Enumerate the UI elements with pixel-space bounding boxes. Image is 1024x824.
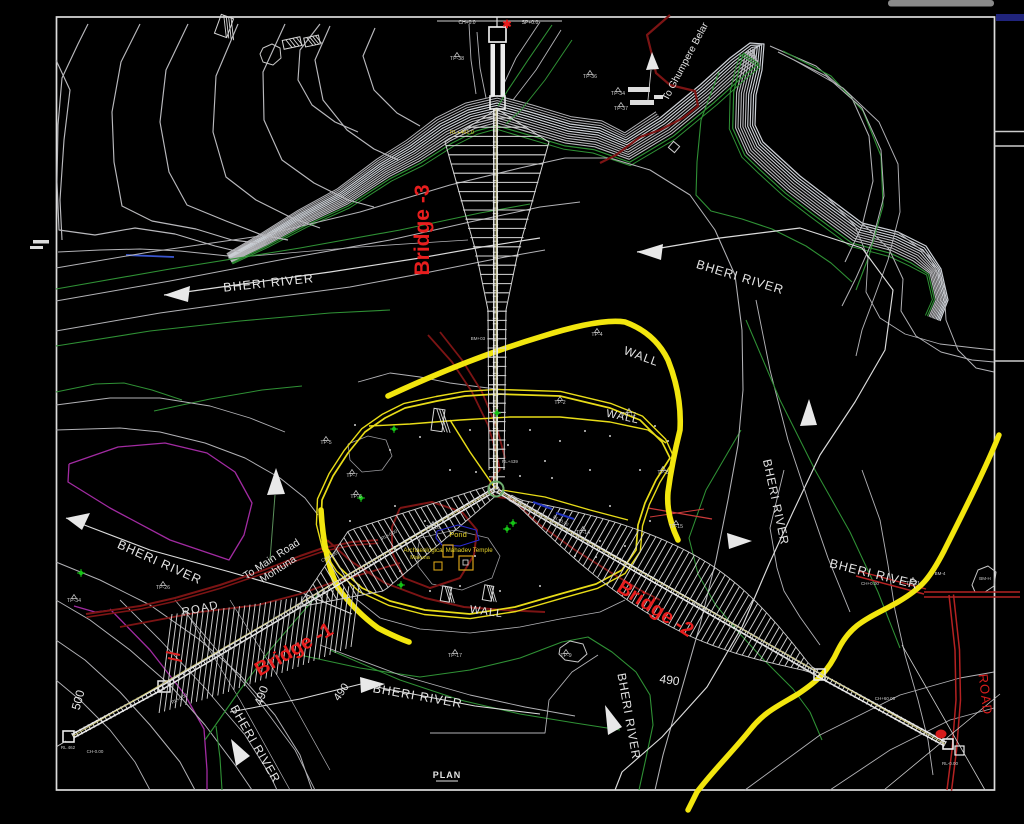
svg-text:RL 462: RL 462 xyxy=(61,745,76,750)
svg-text:TP-6: TP-6 xyxy=(350,494,361,500)
svg-text:490: 490 xyxy=(659,672,681,689)
svg-text:TP-34: TP-34 xyxy=(611,91,625,97)
svg-text:TP-4: TP-4 xyxy=(591,332,602,338)
svg-text:CH+0.00: CH+0.00 xyxy=(861,581,879,586)
svg-text:TP-17: TP-17 xyxy=(448,653,462,659)
svg-text:RL-0.00: RL-0.00 xyxy=(942,761,959,766)
svg-text:TP-9: TP-9 xyxy=(560,653,571,659)
svg-text:CH+60.00: CH+60.00 xyxy=(875,696,896,701)
svg-text:RL+439: RL+439 xyxy=(502,459,518,464)
svg-text:✱: ✱ xyxy=(502,19,511,31)
svg-text:TP-15: TP-15 xyxy=(669,524,683,530)
svg-text:TP-37: TP-37 xyxy=(614,106,628,112)
svg-text:BM+03: BM+03 xyxy=(471,336,486,341)
svg-text:TP-38: TP-38 xyxy=(450,56,464,62)
svg-text:TP-34: TP-34 xyxy=(67,598,81,604)
svg-text:Pond: Pond xyxy=(449,530,467,539)
svg-text:PLAN: PLAN xyxy=(433,770,462,780)
svg-text:SP+0.0: SP+0.0 xyxy=(522,20,539,26)
svg-text:TP-26: TP-26 xyxy=(156,585,170,591)
svg-text:Bridge -3: Bridge -3 xyxy=(411,184,434,275)
svg-text:BM-H: BM-H xyxy=(979,576,991,581)
svg-text:TP-21: TP-21 xyxy=(906,581,920,587)
svg-text:TP-12: TP-12 xyxy=(622,412,636,418)
svg-text:BM-4: BM-4 xyxy=(935,571,946,576)
svg-text:TP-7: TP-7 xyxy=(346,473,357,479)
svg-text:TP-36: TP-36 xyxy=(583,74,597,80)
svg-text:TP-5: TP-5 xyxy=(320,440,331,446)
svg-text:TP-14: TP-14 xyxy=(576,530,590,536)
svg-text:TP-2: TP-2 xyxy=(554,400,565,406)
svg-text:RL+441.0: RL+441.0 xyxy=(450,130,474,136)
svg-text:CH+0.0: CH+0.0 xyxy=(458,20,475,26)
svg-text:TP-8: TP-8 xyxy=(657,470,668,476)
svg-text:CH-0.00: CH-0.00 xyxy=(87,749,104,754)
svg-text:Archaeological Mahadev Temple: Archaeological Mahadev Temple xyxy=(403,547,493,554)
svg-text:TP-16: TP-16 xyxy=(426,525,440,531)
svg-text:Makuna: Makuna xyxy=(410,555,431,561)
